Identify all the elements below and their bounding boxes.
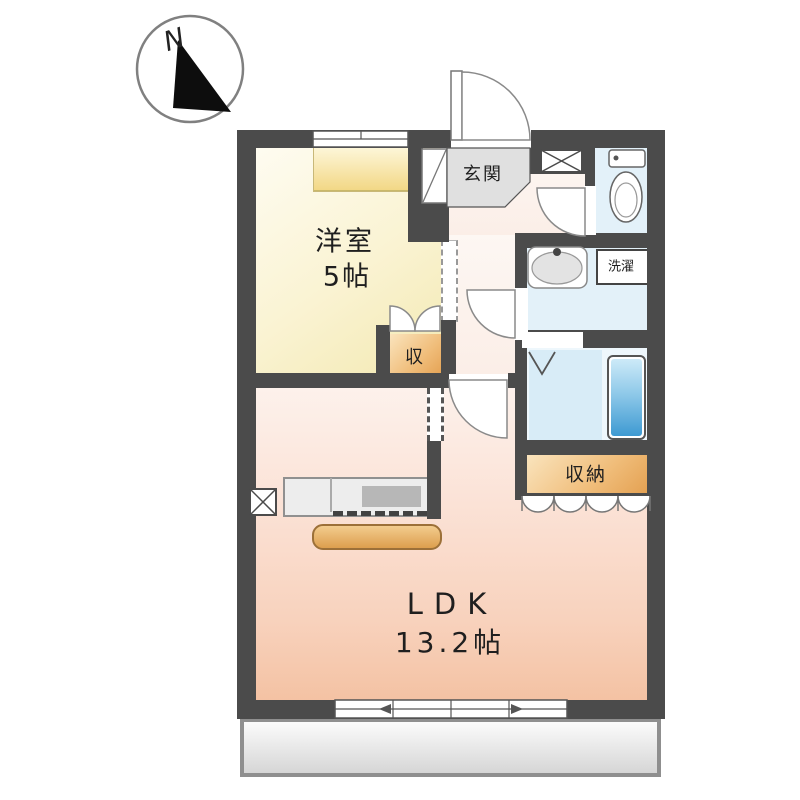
compass-north-label: N xyxy=(160,22,189,58)
sliding-door-western-room xyxy=(441,240,458,322)
kitchen-counter-divider xyxy=(330,478,332,512)
wall-bathroom-bottom xyxy=(515,440,648,455)
balcony xyxy=(240,718,661,777)
wall-closet-left xyxy=(376,325,390,377)
laundry-label: 洗濯 xyxy=(608,256,634,275)
wall-western-room-right-upper xyxy=(408,148,423,205)
kitchen-sink xyxy=(362,486,421,507)
wall-western-room-bottom xyxy=(237,373,449,388)
wall-washroom-top xyxy=(515,233,648,248)
wall-outer-bottom xyxy=(237,700,665,719)
western-room-label: 洋室 xyxy=(315,220,375,259)
western-room-name: 洋室 xyxy=(315,220,375,259)
wall-outer-right xyxy=(647,130,665,719)
wall-entrance-block xyxy=(408,203,449,242)
wall-closet-right xyxy=(441,320,456,377)
bathroom-fold-door-opening xyxy=(522,332,583,348)
toilet-floor xyxy=(595,148,648,235)
compass-needle-icon xyxy=(173,40,231,112)
shower-area xyxy=(529,350,602,448)
ldk-name: LDK xyxy=(407,587,498,621)
kitchen-hood-dashed-line xyxy=(333,511,427,516)
western-room-size: 5帖 xyxy=(323,255,371,294)
storage-label: 収納 xyxy=(565,460,607,487)
closet-label: 収 xyxy=(405,343,423,369)
compass-circle xyxy=(137,16,243,122)
wall-kitchen-stub xyxy=(427,441,441,519)
bay-window-sill xyxy=(313,147,414,192)
ldk-size: 13.2帖 xyxy=(395,621,505,661)
wall-meter-block xyxy=(530,148,595,174)
wall-washroom-left-lower xyxy=(515,338,527,500)
open-passage-dashed xyxy=(427,388,444,441)
entry-door-opening xyxy=(451,130,531,148)
entrance-label: 玄関 xyxy=(463,160,503,186)
ldk-door-opening xyxy=(449,374,508,388)
compass: N xyxy=(137,16,243,122)
wall-outer-left xyxy=(237,130,256,719)
serving-counter xyxy=(312,524,442,550)
toilet-door-opening xyxy=(584,186,596,235)
floor-plan: N xyxy=(0,0,800,800)
